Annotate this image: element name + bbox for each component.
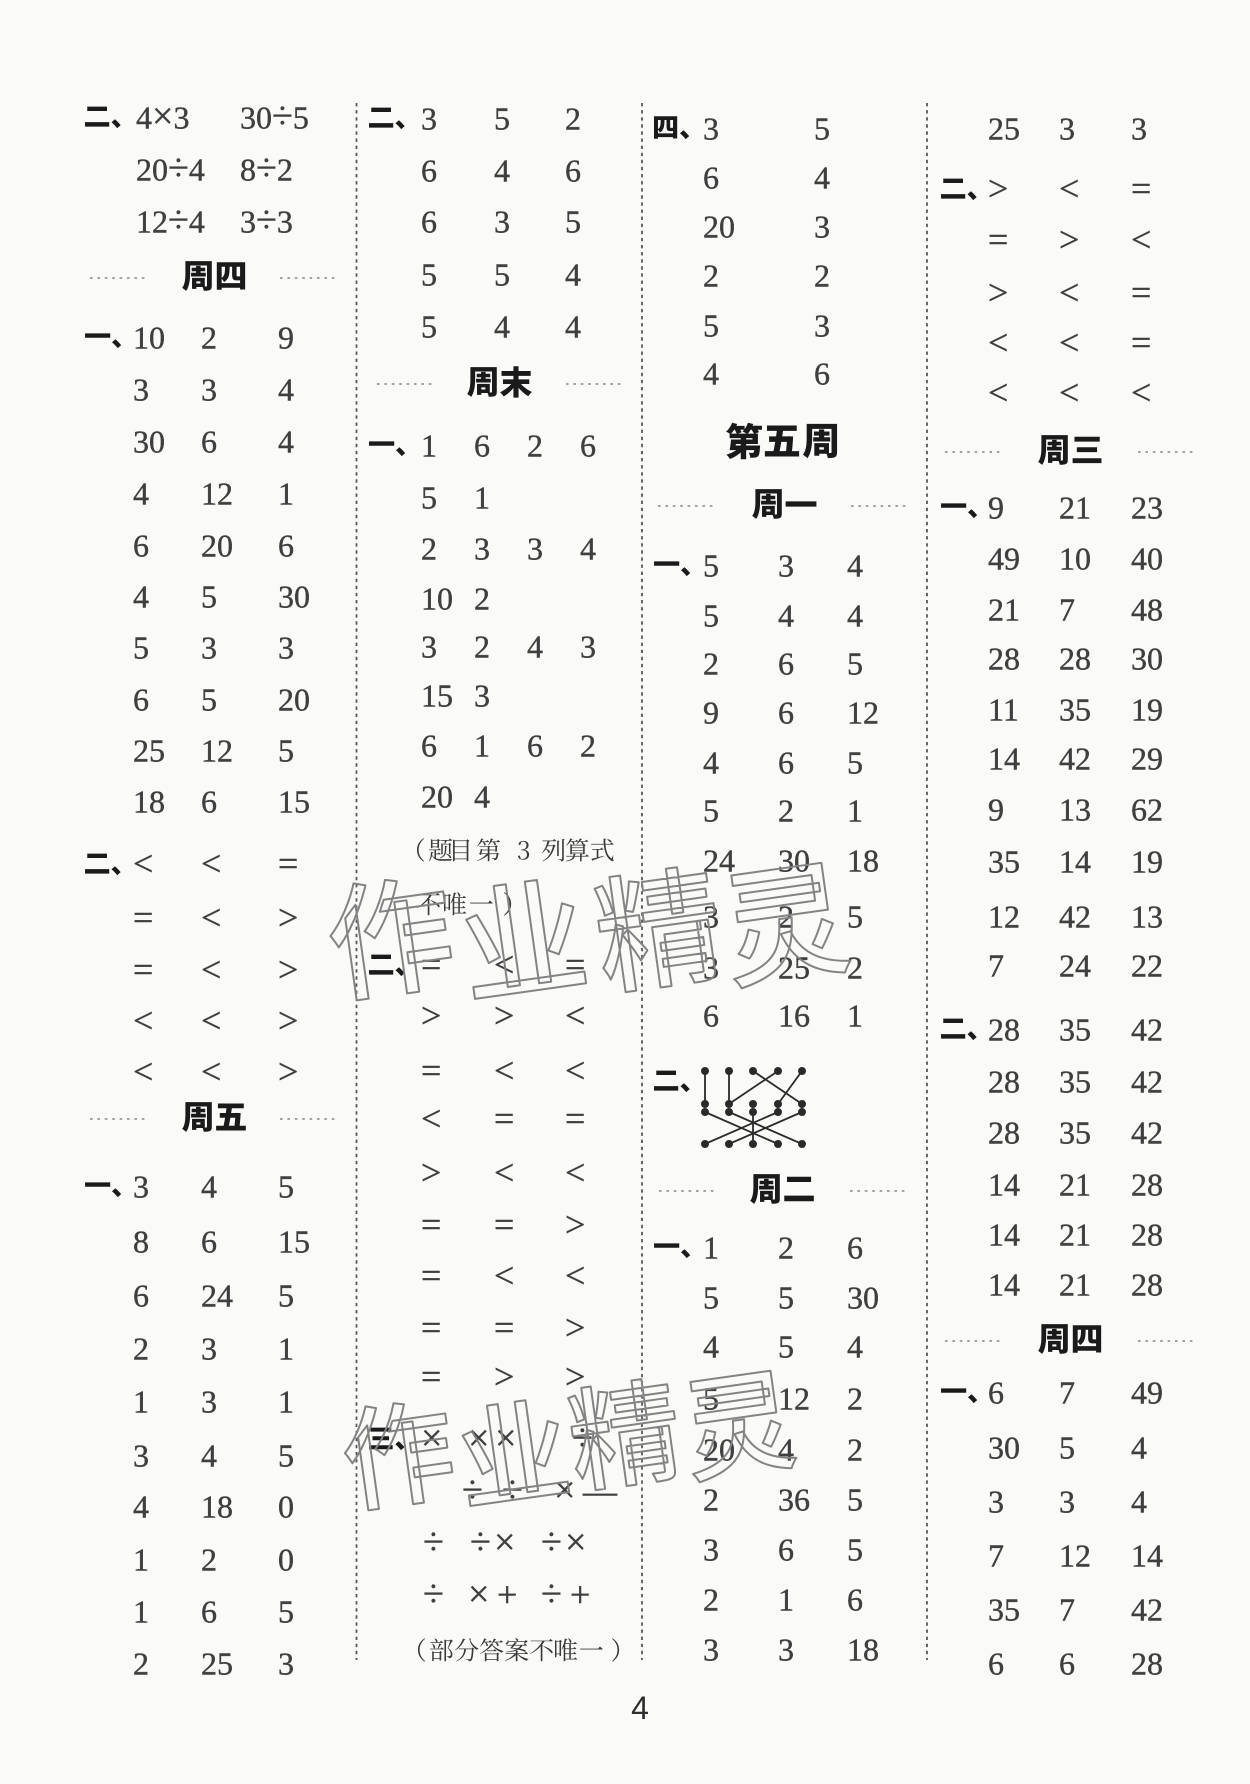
- svg-text:12: 12: [778, 1381, 810, 1417]
- svg-text:14: 14: [988, 1167, 1020, 1203]
- svg-text:21: 21: [1059, 1167, 1091, 1203]
- svg-text:3: 3: [703, 1532, 719, 1568]
- svg-text:6: 6: [421, 153, 437, 189]
- svg-text:>: >: [1059, 220, 1079, 260]
- svg-text:9: 9: [988, 490, 1004, 526]
- svg-text:5: 5: [703, 548, 719, 584]
- svg-text:÷: ÷: [423, 1574, 444, 1616]
- svg-text:6: 6: [278, 528, 294, 564]
- svg-text:5: 5: [133, 630, 149, 666]
- svg-text:1: 1: [421, 428, 437, 464]
- svg-text:4: 4: [847, 598, 863, 634]
- svg-text:3: 3: [494, 204, 510, 240]
- svg-text:25: 25: [201, 1646, 233, 1682]
- svg-text:3: 3: [201, 630, 217, 666]
- svg-text:5: 5: [778, 1329, 794, 1365]
- svg-text:30: 30: [778, 843, 810, 879]
- svg-text:+: +: [497, 1575, 517, 1615]
- svg-text:30: 30: [278, 579, 310, 615]
- svg-text:5: 5: [421, 480, 437, 516]
- svg-text:4: 4: [201, 1438, 217, 1474]
- svg-text:21: 21: [1059, 490, 1091, 526]
- svg-text:5: 5: [278, 1278, 294, 1314]
- svg-text:4: 4: [278, 372, 294, 408]
- svg-text:>: >: [421, 1153, 441, 1193]
- svg-text:2: 2: [133, 1646, 149, 1682]
- svg-text:4: 4: [278, 424, 294, 460]
- svg-text:4: 4: [565, 257, 581, 293]
- svg-text:1: 1: [278, 476, 294, 512]
- svg-text:16: 16: [778, 998, 810, 1034]
- svg-text:14: 14: [988, 1267, 1020, 1303]
- svg-text:2: 2: [527, 428, 543, 464]
- svg-text:3: 3: [474, 531, 490, 567]
- svg-text:>: >: [278, 950, 298, 990]
- svg-text:28: 28: [1131, 1646, 1163, 1682]
- svg-text:3: 3: [1059, 1484, 1075, 1520]
- svg-text:10: 10: [421, 581, 453, 617]
- svg-text:4: 4: [1131, 1430, 1147, 1466]
- svg-text:14: 14: [988, 741, 1020, 777]
- svg-text:3: 3: [201, 372, 217, 408]
- svg-text:35: 35: [988, 844, 1020, 880]
- svg-text:1: 1: [278, 1331, 294, 1367]
- svg-text:6: 6: [778, 1532, 794, 1568]
- svg-text:30: 30: [133, 424, 165, 460]
- svg-text:2: 2: [847, 1432, 863, 1468]
- svg-text:42: 42: [1131, 1012, 1163, 1048]
- svg-text:>: >: [494, 996, 514, 1036]
- svg-text:6: 6: [988, 1375, 1004, 1411]
- svg-text:2: 2: [847, 1381, 863, 1417]
- svg-text:5: 5: [565, 204, 581, 240]
- svg-text:5: 5: [421, 309, 437, 345]
- svg-text:14: 14: [1059, 844, 1091, 880]
- svg-text:18: 18: [847, 843, 879, 879]
- svg-text:30÷5: 30÷5: [240, 96, 309, 138]
- svg-text:=: =: [565, 1099, 585, 1139]
- svg-text:6: 6: [201, 784, 217, 820]
- svg-text:4: 4: [703, 1329, 719, 1365]
- svg-text:3: 3: [421, 101, 437, 137]
- svg-text:6: 6: [847, 1582, 863, 1618]
- svg-text:7: 7: [1059, 1375, 1075, 1411]
- svg-text:+: +: [570, 1575, 590, 1615]
- svg-text:2: 2: [201, 1542, 217, 1578]
- svg-text:<: <: [1131, 220, 1151, 260]
- svg-text:<: <: [565, 996, 585, 1036]
- svg-text:0: 0: [278, 1489, 294, 1525]
- svg-text:1: 1: [133, 1542, 149, 1578]
- svg-text:<: <: [565, 1051, 585, 1091]
- svg-text:6: 6: [565, 153, 581, 189]
- svg-text:0: 0: [278, 1542, 294, 1578]
- svg-text:4: 4: [201, 1169, 217, 1205]
- svg-text:<: <: [1059, 323, 1079, 363]
- svg-text:28: 28: [988, 1115, 1020, 1151]
- svg-text:5: 5: [778, 1280, 794, 1316]
- svg-text:28: 28: [988, 641, 1020, 677]
- svg-text:<: <: [201, 898, 221, 938]
- svg-text:<: <: [494, 1256, 514, 1296]
- svg-text:4: 4: [703, 745, 719, 781]
- svg-text:15: 15: [278, 784, 310, 820]
- svg-text:29: 29: [1131, 741, 1163, 777]
- svg-text:2: 2: [703, 1482, 719, 1518]
- svg-text:3: 3: [133, 1438, 149, 1474]
- svg-text:4: 4: [814, 160, 830, 196]
- svg-text:25: 25: [133, 733, 165, 769]
- svg-text:×: ×: [494, 1522, 515, 1564]
- svg-text:28: 28: [988, 1064, 1020, 1100]
- svg-text:5: 5: [421, 257, 437, 293]
- svg-text:35: 35: [1059, 1012, 1091, 1048]
- svg-text:5: 5: [847, 1482, 863, 1518]
- svg-text:=: =: [421, 1205, 441, 1245]
- svg-text:1: 1: [133, 1384, 149, 1420]
- svg-text:<: <: [1059, 373, 1079, 413]
- svg-text:6: 6: [421, 204, 437, 240]
- svg-text:3: 3: [474, 678, 490, 714]
- svg-text:12: 12: [1059, 1538, 1091, 1574]
- svg-text:>: >: [278, 1052, 298, 1092]
- svg-text:>: >: [988, 273, 1008, 313]
- svg-text:30: 30: [847, 1280, 879, 1316]
- svg-text:3: 3: [988, 1484, 1004, 1520]
- svg-text:—: —: [582, 1474, 618, 1511]
- svg-text:20: 20: [201, 528, 233, 564]
- svg-text:5: 5: [278, 1169, 294, 1205]
- svg-text:5: 5: [278, 1594, 294, 1630]
- svg-text:2: 2: [580, 728, 596, 764]
- svg-text:19: 19: [1131, 692, 1163, 728]
- svg-text:>: >: [988, 169, 1008, 209]
- svg-text:6: 6: [527, 728, 543, 764]
- svg-text:6: 6: [778, 695, 794, 731]
- svg-text:<: <: [494, 1153, 514, 1193]
- svg-text:6: 6: [421, 728, 437, 764]
- svg-text:4: 4: [778, 598, 794, 634]
- svg-text:3÷3: 3÷3: [240, 200, 293, 242]
- svg-text:49: 49: [988, 541, 1020, 577]
- svg-text:4: 4: [474, 779, 490, 815]
- svg-text:24: 24: [1059, 948, 1091, 984]
- svg-text:6: 6: [133, 528, 149, 564]
- svg-text:6: 6: [814, 356, 830, 392]
- svg-text:<: <: [201, 950, 221, 990]
- svg-text:35: 35: [1059, 1115, 1091, 1151]
- svg-text:42: 42: [1131, 1064, 1163, 1100]
- svg-text:30: 30: [988, 1430, 1020, 1466]
- svg-text:35: 35: [1059, 692, 1091, 728]
- svg-text:20: 20: [703, 209, 735, 245]
- svg-text:4: 4: [133, 579, 149, 615]
- svg-text:>: >: [278, 898, 298, 938]
- svg-text:5: 5: [494, 101, 510, 137]
- svg-text:6: 6: [133, 1278, 149, 1314]
- svg-text:×: ×: [495, 1418, 516, 1460]
- svg-text:<: <: [421, 1099, 441, 1139]
- svg-text:=: =: [565, 945, 585, 985]
- svg-text:6: 6: [201, 1594, 217, 1630]
- svg-text:4: 4: [778, 1432, 794, 1468]
- svg-text:2: 2: [565, 101, 581, 137]
- svg-text:3: 3: [201, 1331, 217, 1367]
- svg-text:36: 36: [778, 1482, 810, 1518]
- svg-text:15: 15: [421, 678, 453, 714]
- svg-text:<: <: [494, 1051, 514, 1091]
- svg-text:20: 20: [278, 682, 310, 718]
- svg-text:3: 3: [201, 1384, 217, 1420]
- svg-text:=: =: [1131, 169, 1151, 209]
- svg-text:18: 18: [201, 1489, 233, 1525]
- svg-text:8: 8: [133, 1224, 149, 1260]
- svg-text:4: 4: [133, 476, 149, 512]
- svg-text:5: 5: [494, 257, 510, 293]
- svg-text:1: 1: [133, 1594, 149, 1630]
- svg-text:2: 2: [474, 629, 490, 665]
- svg-text:3: 3: [278, 1646, 294, 1682]
- svg-text:2: 2: [703, 258, 719, 294]
- svg-text:28: 28: [988, 1012, 1020, 1048]
- svg-text:6: 6: [703, 998, 719, 1034]
- svg-text:4: 4: [494, 309, 510, 345]
- svg-text:4: 4: [494, 153, 510, 189]
- svg-text:2: 2: [847, 950, 863, 986]
- svg-text:62: 62: [1131, 792, 1163, 828]
- svg-text:42: 42: [1059, 899, 1091, 935]
- svg-text:12: 12: [988, 899, 1020, 935]
- svg-text:30: 30: [1131, 641, 1163, 677]
- svg-text:<: <: [133, 844, 153, 884]
- svg-text:20: 20: [421, 779, 453, 815]
- svg-text:7: 7: [988, 1538, 1004, 1574]
- svg-text:9: 9: [703, 695, 719, 731]
- svg-text:14: 14: [988, 1217, 1020, 1253]
- svg-text:4: 4: [565, 309, 581, 345]
- svg-text:1: 1: [474, 728, 490, 764]
- svg-text:>: >: [565, 1205, 585, 1245]
- svg-text:4: 4: [847, 548, 863, 584]
- svg-text:6: 6: [703, 160, 719, 196]
- svg-text:5: 5: [703, 793, 719, 829]
- svg-text:5: 5: [814, 111, 830, 147]
- svg-text:28: 28: [1131, 1167, 1163, 1203]
- svg-text:14: 14: [1131, 1538, 1163, 1574]
- svg-text:2: 2: [778, 1230, 794, 1266]
- svg-text:20÷4: 20÷4: [136, 148, 205, 190]
- svg-text:5: 5: [703, 598, 719, 634]
- svg-text:10: 10: [1059, 541, 1091, 577]
- svg-text:9: 9: [988, 792, 1004, 828]
- svg-text:3: 3: [527, 531, 543, 567]
- svg-text:<: <: [1059, 273, 1079, 313]
- svg-text:3: 3: [133, 1169, 149, 1205]
- svg-text:40: 40: [1131, 541, 1163, 577]
- svg-text:×: ×: [565, 1522, 586, 1564]
- svg-text:5: 5: [201, 579, 217, 615]
- svg-text:5: 5: [278, 733, 294, 769]
- svg-text:<: <: [133, 1001, 153, 1041]
- svg-text:×: ×: [554, 1470, 575, 1512]
- svg-text:5: 5: [847, 899, 863, 935]
- svg-text:<: <: [988, 373, 1008, 413]
- svg-text:=: =: [1131, 323, 1151, 363]
- svg-text:3: 3: [278, 630, 294, 666]
- svg-text:7: 7: [1059, 1592, 1075, 1628]
- svg-text:3: 3: [580, 629, 596, 665]
- svg-text:=: =: [278, 844, 298, 884]
- svg-text:24: 24: [703, 843, 735, 879]
- svg-text:÷: ÷: [470, 1522, 491, 1564]
- svg-text:7: 7: [988, 948, 1004, 984]
- svg-text:35: 35: [988, 1592, 1020, 1628]
- svg-text:3: 3: [703, 111, 719, 147]
- svg-text:<: <: [133, 1052, 153, 1092]
- svg-text:12: 12: [201, 733, 233, 769]
- svg-text:1: 1: [847, 793, 863, 829]
- svg-text:23: 23: [1131, 490, 1163, 526]
- svg-text:5: 5: [703, 308, 719, 344]
- svg-text:>: >: [421, 996, 441, 1036]
- svg-text:21: 21: [988, 592, 1020, 628]
- svg-text:<: <: [565, 1153, 585, 1193]
- svg-text:=: =: [494, 1308, 514, 1348]
- svg-text:2: 2: [703, 646, 719, 682]
- svg-text:÷: ÷: [541, 1522, 562, 1564]
- svg-text:5: 5: [847, 646, 863, 682]
- svg-text:<: <: [565, 1256, 585, 1296]
- svg-text:=: =: [421, 1256, 441, 1296]
- svg-text:12: 12: [847, 695, 879, 731]
- svg-text:6: 6: [201, 1224, 217, 1260]
- svg-text:1: 1: [703, 1230, 719, 1266]
- svg-text:6: 6: [580, 428, 596, 464]
- svg-text:<: <: [988, 323, 1008, 363]
- svg-text:21: 21: [1059, 1217, 1091, 1253]
- svg-text:42: 42: [1131, 1592, 1163, 1628]
- svg-text:42: 42: [1059, 741, 1091, 777]
- svg-text:=: =: [494, 1099, 514, 1139]
- svg-text:28: 28: [1131, 1267, 1163, 1303]
- svg-text:=: =: [494, 1205, 514, 1245]
- svg-text:=: =: [133, 898, 153, 938]
- svg-text:13: 13: [1059, 792, 1091, 828]
- svg-text:22: 22: [1131, 948, 1163, 984]
- svg-text:÷: ÷: [423, 1522, 444, 1564]
- svg-text:<: <: [201, 1001, 221, 1041]
- svg-text:8÷2: 8÷2: [240, 148, 293, 190]
- svg-text:28: 28: [1131, 1217, 1163, 1253]
- svg-text:3: 3: [814, 209, 830, 245]
- svg-text:3: 3: [778, 1632, 794, 1668]
- svg-text:3: 3: [1131, 111, 1147, 147]
- svg-text:3: 3: [814, 308, 830, 344]
- svg-text:2: 2: [133, 1331, 149, 1367]
- svg-text:2: 2: [474, 581, 490, 617]
- svg-text:48: 48: [1131, 592, 1163, 628]
- svg-text:2: 2: [814, 258, 830, 294]
- svg-text:15: 15: [278, 1224, 310, 1260]
- svg-text:4: 4: [133, 1489, 149, 1525]
- svg-text:4: 4: [580, 531, 596, 567]
- svg-text:42: 42: [1131, 1115, 1163, 1151]
- svg-text:5: 5: [1059, 1430, 1075, 1466]
- svg-text:10: 10: [133, 320, 165, 356]
- svg-text:<: <: [201, 844, 221, 884]
- svg-text:1: 1: [847, 998, 863, 1034]
- svg-text:6: 6: [847, 1230, 863, 1266]
- svg-text:2: 2: [703, 1582, 719, 1618]
- svg-text:1: 1: [474, 480, 490, 516]
- svg-text:6: 6: [133, 682, 149, 718]
- svg-text:12: 12: [201, 476, 233, 512]
- svg-text:4: 4: [527, 629, 543, 665]
- svg-text:2: 2: [778, 793, 794, 829]
- svg-text:4: 4: [703, 356, 719, 392]
- svg-text:1: 1: [778, 1582, 794, 1618]
- svg-text:=: =: [133, 950, 153, 990]
- svg-text:×: ×: [468, 1418, 489, 1460]
- svg-text:5: 5: [847, 1532, 863, 1568]
- svg-text:÷: ÷: [541, 1574, 562, 1616]
- svg-text:=: =: [421, 1308, 441, 1348]
- svg-text:<: <: [201, 1052, 221, 1092]
- svg-text:6: 6: [778, 646, 794, 682]
- svg-text:6: 6: [1059, 1646, 1075, 1682]
- svg-text:3: 3: [421, 629, 437, 665]
- svg-text:=: =: [421, 1357, 441, 1397]
- svg-text:21: 21: [1059, 1267, 1091, 1303]
- svg-text:>: >: [565, 1308, 585, 1348]
- svg-text:<: <: [1059, 169, 1079, 209]
- svg-text:5: 5: [278, 1438, 294, 1474]
- svg-text:35: 35: [1059, 1064, 1091, 1100]
- svg-text:2: 2: [421, 531, 437, 567]
- svg-text:6: 6: [988, 1646, 1004, 1682]
- svg-text:3: 3: [703, 1632, 719, 1668]
- svg-text:4: 4: [1131, 1484, 1147, 1520]
- svg-text:5: 5: [703, 1280, 719, 1316]
- svg-text:7: 7: [1059, 592, 1075, 628]
- svg-text:3: 3: [778, 548, 794, 584]
- svg-text:2: 2: [201, 320, 217, 356]
- svg-text:=: =: [988, 220, 1008, 260]
- svg-text:25: 25: [988, 111, 1020, 147]
- svg-text:24: 24: [201, 1278, 233, 1314]
- svg-text:4: 4: [847, 1329, 863, 1365]
- svg-text:13: 13: [1131, 899, 1163, 935]
- svg-text:3: 3: [1059, 111, 1075, 147]
- svg-text:6: 6: [474, 428, 490, 464]
- svg-text:=: =: [421, 1051, 441, 1091]
- svg-text:12÷4: 12÷4: [136, 200, 205, 242]
- svg-text:>: >: [278, 1001, 298, 1041]
- svg-text:11: 11: [988, 692, 1019, 728]
- svg-text:9: 9: [278, 320, 294, 356]
- svg-text:<: <: [1131, 373, 1151, 413]
- svg-text:4×3: 4×3: [136, 96, 189, 138]
- svg-text:1: 1: [278, 1384, 294, 1420]
- svg-text:5: 5: [847, 745, 863, 781]
- svg-text:×: ×: [468, 1574, 489, 1616]
- svg-text:19: 19: [1131, 844, 1163, 880]
- svg-text:18: 18: [847, 1632, 879, 1668]
- svg-text:>: >: [494, 1357, 514, 1397]
- svg-text:6: 6: [778, 745, 794, 781]
- svg-text:28: 28: [1059, 641, 1091, 677]
- svg-text:4: 4: [631, 1690, 649, 1726]
